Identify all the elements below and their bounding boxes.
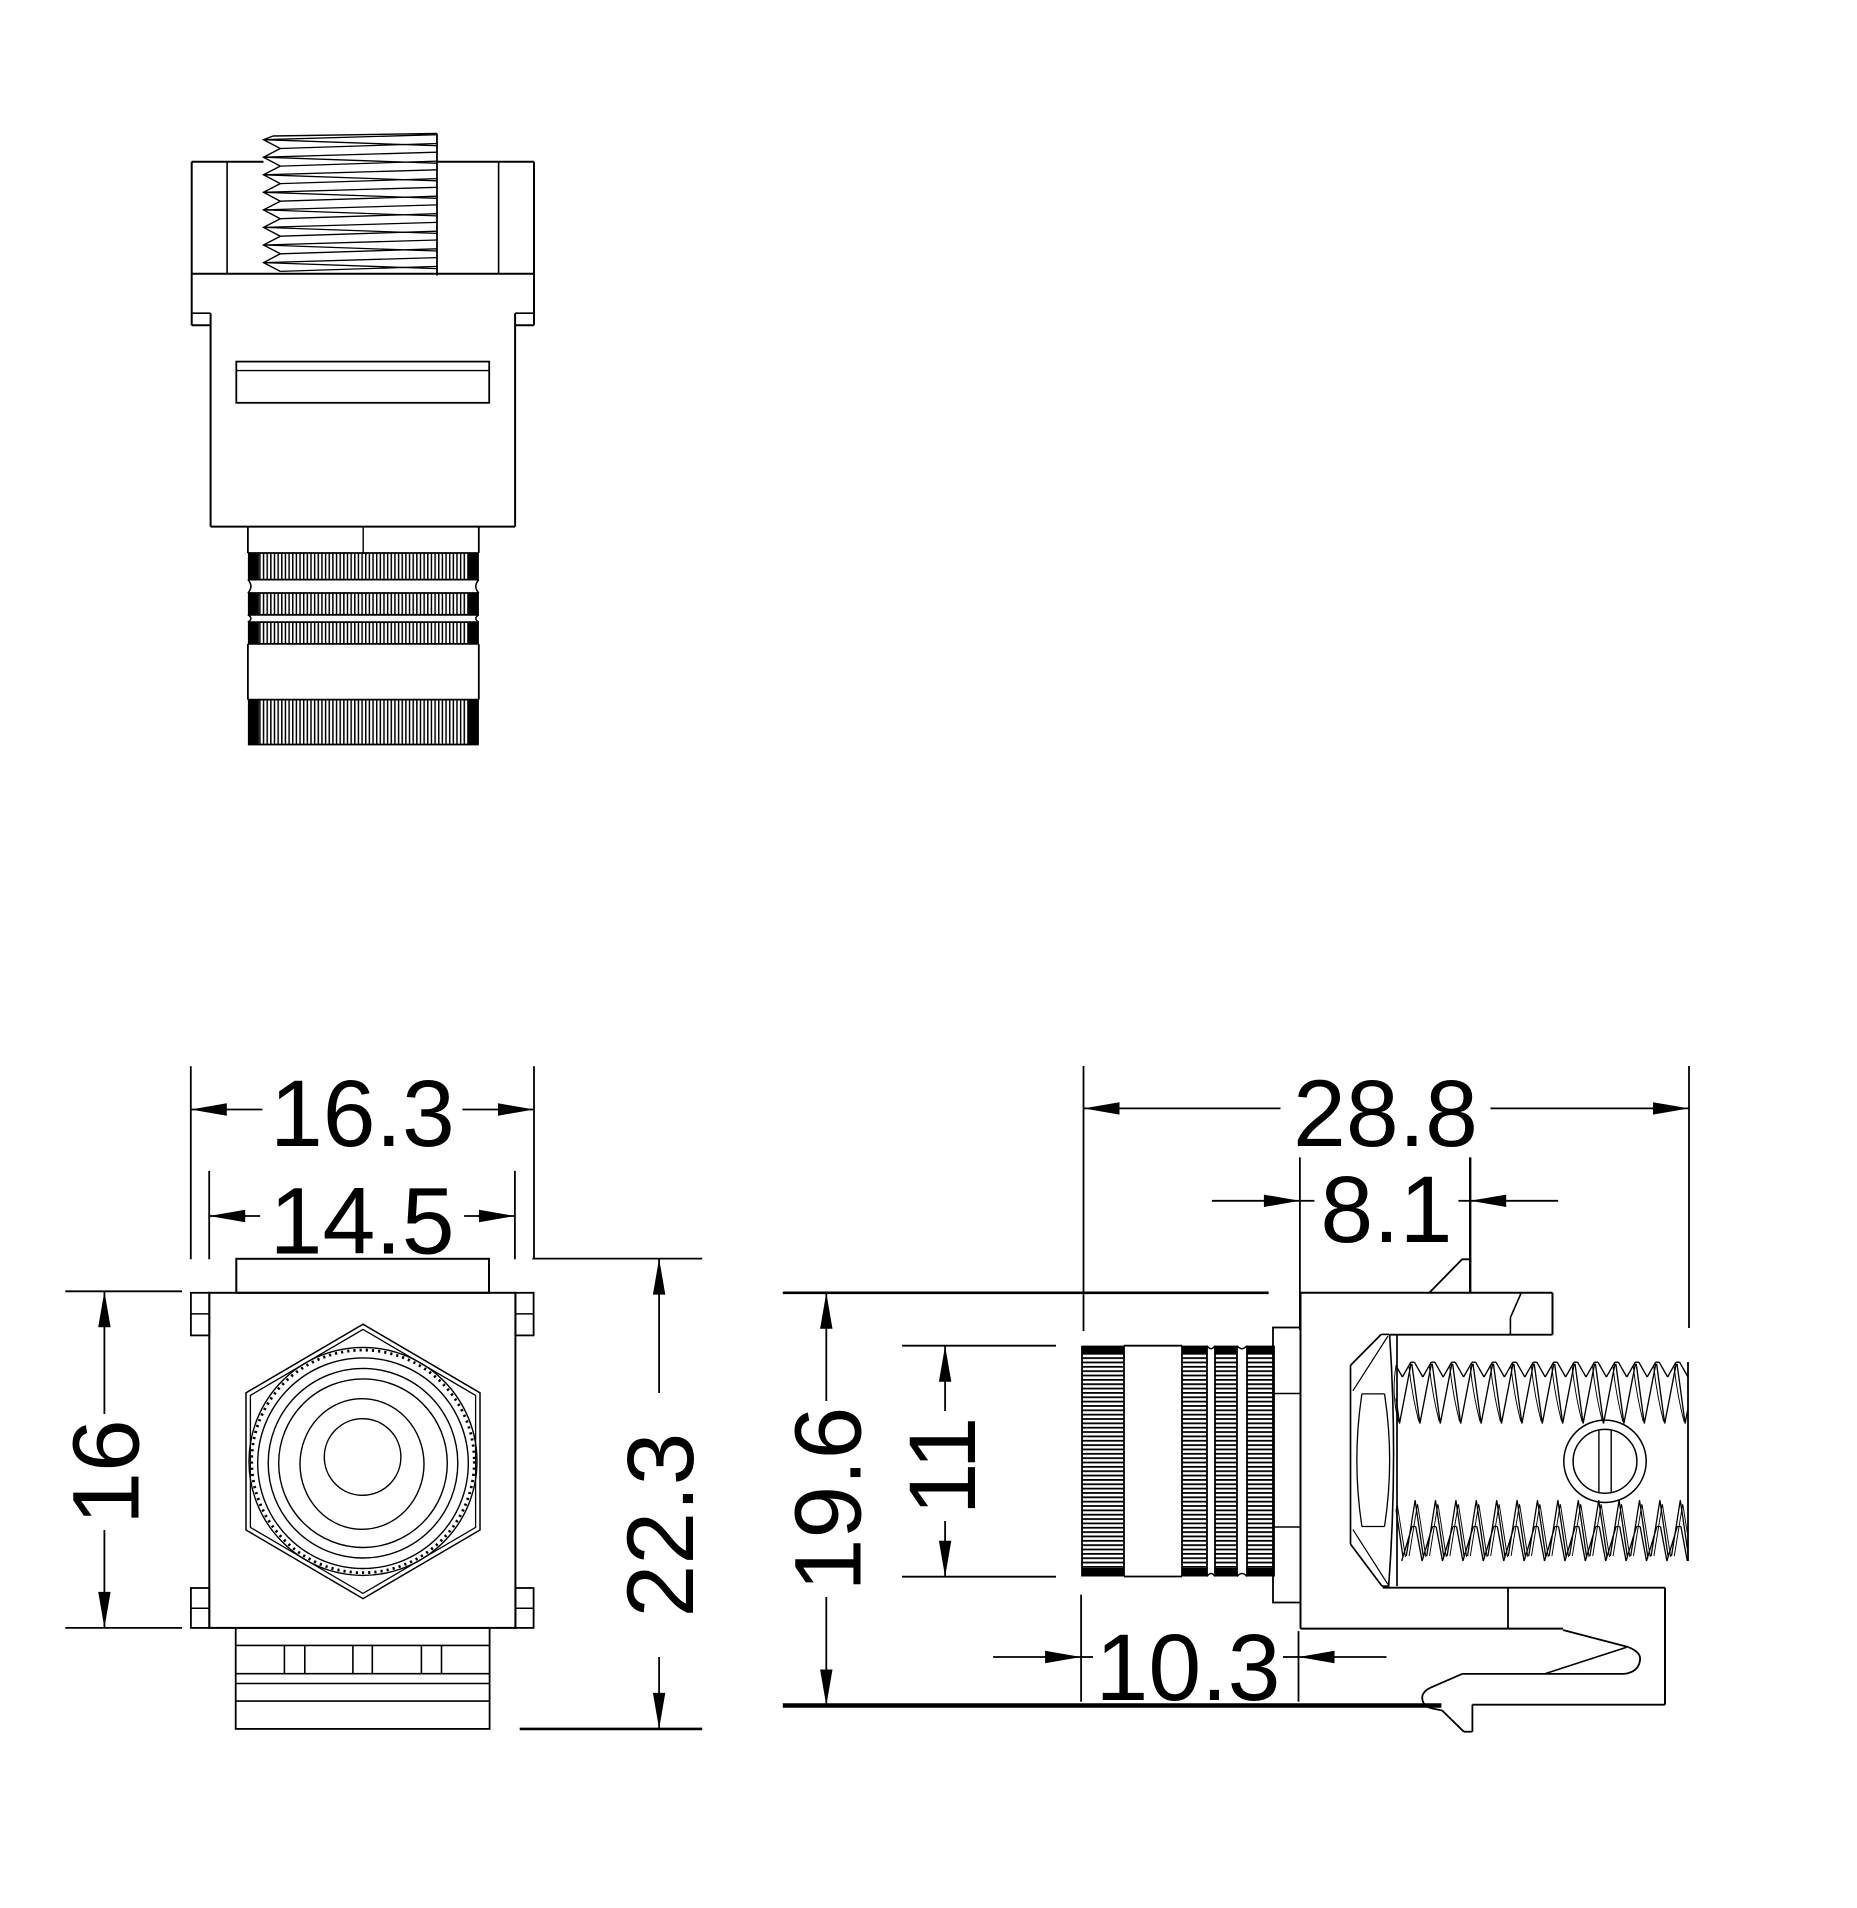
svg-text:16.3: 16.3: [270, 1061, 455, 1167]
svg-text:16: 16: [53, 1419, 159, 1525]
svg-text:10.3: 10.3: [1096, 1615, 1281, 1721]
svg-text:22.3: 22.3: [608, 1433, 714, 1618]
svg-text:19.6: 19.6: [775, 1407, 881, 1592]
svg-text:28.8: 28.8: [1293, 1061, 1478, 1167]
svg-text:8.1: 8.1: [1320, 1157, 1452, 1263]
svg-text:11: 11: [890, 1417, 996, 1516]
svg-text:14.5: 14.5: [270, 1169, 455, 1275]
